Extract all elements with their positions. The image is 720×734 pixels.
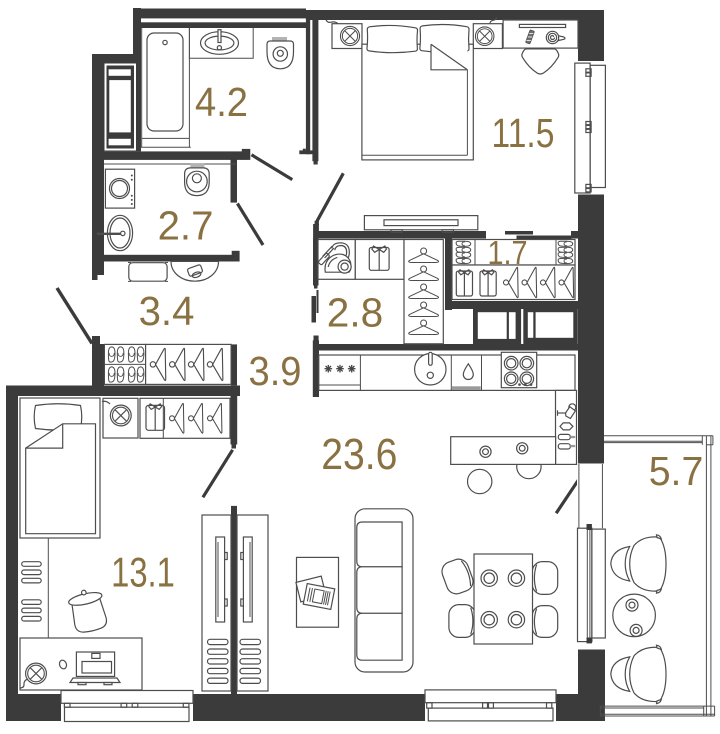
svg-text:2.8: 2.8 (327, 290, 383, 336)
svg-text:4.2: 4.2 (195, 80, 248, 126)
svg-text:5.7: 5.7 (649, 449, 704, 494)
svg-text:3.9: 3.9 (248, 349, 301, 395)
svg-text:2.7: 2.7 (158, 202, 214, 248)
svg-text:1.7: 1.7 (487, 234, 527, 272)
svg-text:11.5: 11.5 (492, 110, 555, 156)
svg-text:3.4: 3.4 (139, 288, 195, 334)
svg-text:23.6: 23.6 (321, 429, 397, 479)
svg-text:13.1: 13.1 (111, 549, 175, 596)
